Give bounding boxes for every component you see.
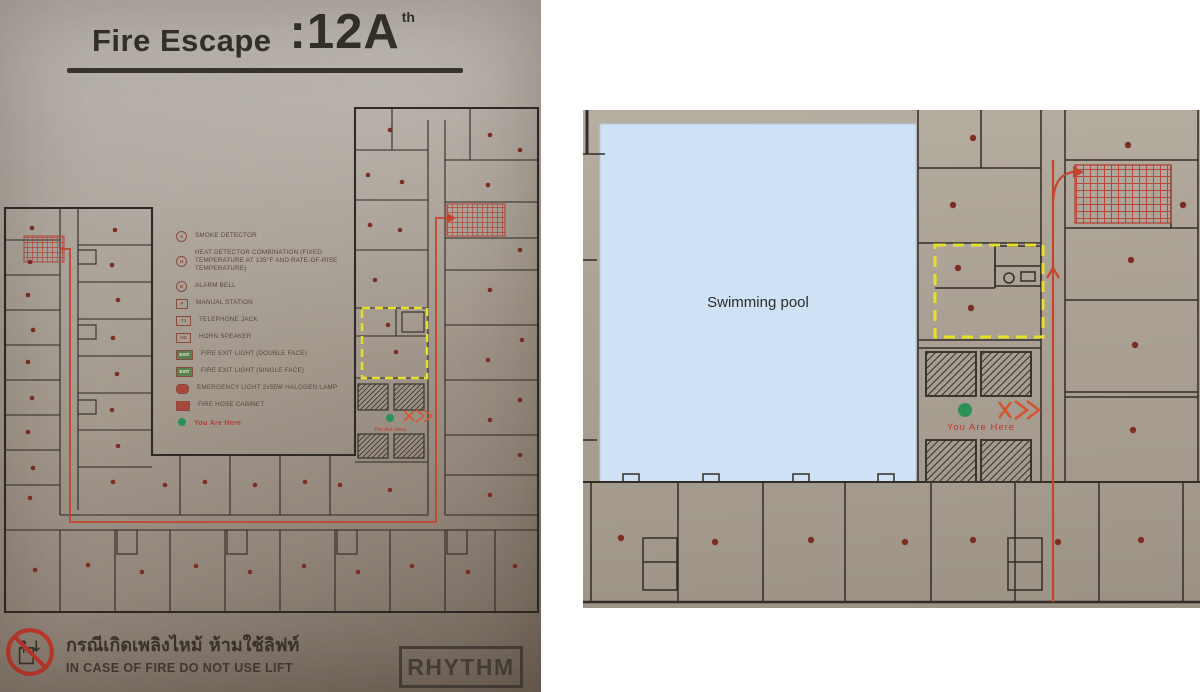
you-are-here-marker	[958, 403, 972, 417]
smoke-detector-dot	[968, 305, 974, 311]
smoke-detector-dot	[33, 568, 38, 573]
smoke-detector-dot	[1125, 142, 1131, 148]
brand-name: RHYTHM	[407, 654, 514, 681]
smoke-detector-dot	[110, 263, 115, 268]
fire-hose-cabinet-icon	[176, 401, 190, 411]
smoke-detector-dot	[488, 133, 493, 138]
smoke-detector-dot	[486, 183, 491, 188]
legend-label: HEAT DETECTOR COMBINATION (FIXED TEMPERA…	[195, 249, 350, 274]
smoke-detector-dot	[338, 483, 343, 488]
fire-escape-sign-photo: Fire Escape :12A th	[0, 0, 541, 692]
elevator-shafts	[926, 352, 1031, 482]
floor-suffix: th	[402, 9, 415, 25]
smoke-detector-dot	[31, 466, 36, 471]
legend-item: FMANUAL STATION	[176, 299, 350, 309]
smoke-detector-dot	[26, 293, 31, 298]
legend-label: SMOKE DETECTOR	[195, 232, 257, 240]
smoke-detector-dot	[303, 480, 308, 485]
legend-item: EXITFIRE EXIT LIGHT (SINGLE FACE)	[176, 367, 350, 377]
smoke-detector-dot	[486, 358, 491, 363]
smoke-detector-dot	[400, 180, 405, 185]
warning-text: กรณีเกิดเพลิงไหม้ ห้ามใช้ลิฟท์ IN CASE O…	[66, 630, 299, 675]
unit-highlight-box	[935, 245, 1043, 337]
smoke-detector-dot	[86, 563, 91, 568]
smoke-detector-dot	[518, 398, 523, 403]
smoke-detector-dot	[518, 248, 523, 253]
smoke-detector-dot	[488, 288, 493, 293]
legend-label: FIRE EXIT LIGHT (SINGLE FACE)	[201, 367, 304, 375]
smoke-detector-dot	[26, 360, 31, 365]
you-are-here-label: You Are Here	[947, 422, 1015, 433]
legend-label: HORN SPEAKER	[199, 333, 251, 341]
legend-label: TELEPHONE JACK	[199, 316, 258, 324]
heat-detector-icon: H	[176, 256, 187, 267]
warning-strip: กรณีเกิดเพลิงไหม้ ห้ามใช้ลิฟท์ IN CASE O…	[4, 626, 299, 678]
smoke-detector-dot	[111, 336, 116, 341]
smoke-detector-dot	[386, 323, 391, 328]
smoke-detector-dot	[373, 278, 378, 283]
title-underline	[67, 68, 463, 73]
fire-stairs	[1075, 165, 1171, 223]
smoke-detector-dot	[712, 539, 718, 545]
brand-logo: RHYTHM	[399, 646, 523, 688]
smoke-detector-dot	[31, 328, 36, 333]
screenshot-root: Fire Escape :12A th	[0, 0, 1200, 692]
legend-item: FIRE HOSE CABINET	[176, 401, 350, 411]
smoke-detector-dot	[955, 265, 961, 271]
smoke-detector-dot	[950, 202, 956, 208]
smoke-detector-dot	[970, 537, 976, 543]
unit-highlight-box	[362, 308, 427, 378]
smoke-detector-dot	[388, 128, 393, 133]
title-text: Fire Escape	[92, 23, 272, 59]
legend-item: HHEAT DETECTOR COMBINATION (FIXED TEMPER…	[176, 249, 350, 274]
smoke-detector-dot	[466, 570, 471, 575]
legend-label: You Are Here	[194, 418, 241, 427]
smoke-detector-dot	[410, 564, 415, 569]
smoke-detector-dot	[110, 408, 115, 413]
smoke-detector-dot	[1138, 537, 1144, 543]
legend-item: SSMOKE DETECTOR	[176, 231, 350, 242]
smoke-detector-dot	[163, 483, 168, 488]
smoke-detector-dot	[388, 488, 393, 493]
smoke-detector-dot	[518, 453, 523, 458]
warning-english: IN CASE OF FIRE DO NOT USE LIFT	[66, 661, 299, 675]
alarm-bell-icon: B	[176, 281, 187, 292]
smoke-detector-dot	[618, 535, 624, 541]
smoke-detector-icon: S	[176, 231, 187, 242]
sign-title: Fire Escape :12A th	[92, 8, 415, 59]
legend-item: BALARM BELL	[176, 281, 350, 292]
telephone-jack-icon: TJ	[176, 316, 191, 326]
smoke-detector-dot	[248, 570, 253, 575]
legend-item: HSHORN SPEAKER	[176, 333, 350, 343]
smoke-detector-dot	[1130, 427, 1136, 433]
you-are-here-label: You Are Here	[374, 427, 407, 433]
floor-plan-detail: Swimming pool	[583, 110, 1200, 608]
smoke-detector-dot	[520, 338, 525, 343]
smoke-detector-dot	[116, 444, 121, 449]
escape-route	[1047, 160, 1073, 602]
emergency-light-icon	[176, 384, 189, 394]
swimming-pool-label: Swimming pool	[707, 294, 809, 311]
smoke-detector-dot	[902, 539, 908, 545]
smoke-detector-dot	[140, 570, 145, 575]
smoke-detector-dot	[488, 493, 493, 498]
smoke-detector-dot	[808, 537, 814, 543]
smoke-detector-dot	[28, 496, 33, 501]
fire-exit-light-single-icon: EXIT	[176, 367, 193, 377]
smoke-detector-dot	[28, 260, 33, 265]
exit-direction-icon	[999, 401, 1039, 419]
no-lift-icon	[4, 626, 56, 678]
smoke-detector-dot	[116, 298, 121, 303]
legend-label: EMERGENCY LIGHT 2x55W HALOGEN LAMP	[197, 384, 337, 392]
horn-speaker-icon: HS	[176, 333, 191, 343]
legend: SSMOKE DETECTORHHEAT DETECTOR COMBINATIO…	[176, 231, 350, 434]
smoke-detector-dot	[194, 564, 199, 569]
you-are-here-marker	[386, 414, 394, 422]
smoke-detector-dot	[30, 226, 35, 231]
smoke-detector-dot	[1132, 342, 1138, 348]
smoke-detector-dot	[970, 135, 976, 141]
smoke-detector-dot	[253, 483, 258, 488]
smoke-detector-dot	[398, 228, 403, 233]
smoke-detector-dot	[203, 480, 208, 485]
legend-item: TJTELEPHONE JACK	[176, 316, 350, 326]
smoke-detector-dot	[368, 223, 373, 228]
smoke-detector-dot	[111, 480, 116, 485]
smoke-detector-dot	[1055, 539, 1061, 545]
legend-item: You Are Here	[176, 418, 350, 427]
you-are-here-icon	[178, 418, 186, 426]
smoke-detector-dot	[518, 148, 523, 153]
legend-label: ALARM BELL	[195, 282, 236, 290]
plan-detail-photo: Swimming pool	[583, 110, 1200, 608]
smoke-detector-dot	[488, 418, 493, 423]
smoke-detector-dot	[356, 570, 361, 575]
smoke-detector-dot	[30, 396, 35, 401]
legend-label: MANUAL STATION	[196, 299, 253, 307]
legend-label: FIRE HOSE CABINET	[198, 401, 264, 409]
fire-exit-light-double-icon: EXIT	[176, 350, 193, 360]
legend-label: FIRE EXIT LIGHT (DOUBLE FACE)	[201, 350, 307, 358]
floor-number: :12A	[290, 8, 400, 57]
smoke-detector-dot	[113, 228, 118, 233]
warning-thai: กรณีเกิดเพลิงไหม้ ห้ามใช้ลิฟท์	[66, 630, 299, 659]
smoke-detector-dot	[26, 430, 31, 435]
smoke-detector-dot	[115, 372, 120, 377]
legend-item: EMERGENCY LIGHT 2x55W HALOGEN LAMP	[176, 384, 350, 394]
smoke-detector-dot	[1180, 202, 1186, 208]
smoke-detector-dot	[366, 173, 371, 178]
manual-station-icon: F	[176, 299, 188, 309]
legend-item: EXITFIRE EXIT LIGHT (DOUBLE FACE)	[176, 350, 350, 360]
smoke-detector-dot	[394, 350, 399, 355]
smoke-detector-dot	[1128, 257, 1134, 263]
smoke-detector-dot	[513, 564, 518, 569]
smoke-detector-dot	[302, 564, 307, 569]
